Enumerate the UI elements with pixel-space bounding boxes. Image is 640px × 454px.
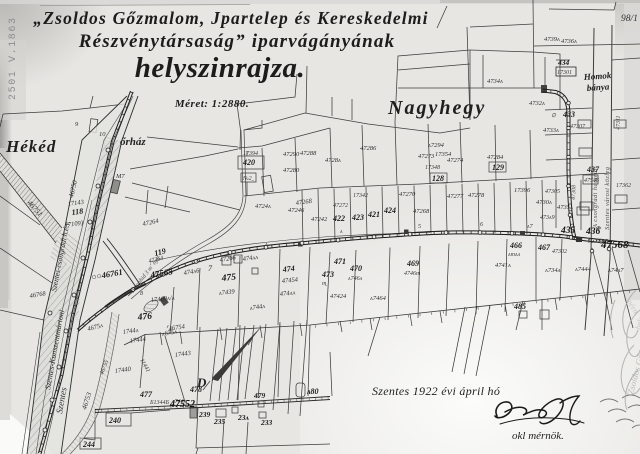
svg-text:4739ʌ: 4739ʌ — [544, 36, 560, 43]
svg-text:okl mérnök.: okl mérnök. — [512, 430, 564, 442]
svg-text:Szentes 1922 évi ápril hó: Szentes 1922 évi ápril hó — [372, 384, 500, 398]
svg-text:47305: 47305 — [545, 188, 560, 195]
svg-text:Hékéd: Hékéd — [5, 137, 56, 156]
svg-text:4735ʌ: 4735ʌ — [557, 204, 573, 211]
svg-text:17362: 17362 — [616, 183, 631, 189]
svg-text:473ʌ9: 473ʌ9 — [540, 214, 555, 221]
svg-text:244: 244 — [82, 440, 95, 449]
svg-text:4728ʌ: 4728ʌ — [325, 157, 341, 164]
svg-text:470: 470 — [349, 264, 362, 273]
svg-text:ʌ: ʌ — [265, 242, 268, 248]
svg-text:471: 471 — [333, 257, 346, 266]
svg-text:473: 473 — [321, 270, 334, 279]
svg-text:469: 469 — [406, 259, 419, 268]
svg-text:485: 485 — [513, 302, 526, 311]
svg-text:4733ʌ: 4733ʌ — [543, 127, 559, 134]
svg-text:47307: 47307 — [570, 123, 586, 130]
svg-text:Méret: 1:2880.: Méret: 1:2880. — [174, 98, 249, 110]
svg-text:2501 V.1863: 2501 V.1863 — [8, 16, 19, 100]
svg-text:„Zsoldos Gőzmalom, Jpartelep é: „Zsoldos Gőzmalom, Jpartelep és Keresked… — [33, 8, 428, 28]
svg-text:47274: 47274 — [447, 157, 464, 164]
svg-text:435: 435 — [560, 226, 576, 236]
svg-text:Nagyhegy: Nagyhegy — [387, 97, 486, 119]
svg-text:ʌ746ʌ: ʌ746ʌ — [348, 275, 363, 282]
svg-text:47246: 47246 — [288, 207, 305, 214]
svg-text:420: 420 — [242, 158, 255, 167]
svg-text:4736ʌ: 4736ʌ — [561, 38, 577, 45]
svg-text:47286: 47286 — [360, 145, 377, 152]
svg-text:ʌ734ʌ: ʌ734ʌ — [545, 267, 561, 274]
svg-text:Homok: Homok — [582, 70, 612, 82]
svg-text:№2 ̫: №2 ̫ — [242, 176, 254, 182]
svg-text:D: D — [196, 375, 207, 390]
svg-text:4732ʌ: 4732ʌ — [529, 100, 545, 107]
svg-text:17396: 17396 — [514, 187, 531, 194]
svg-text:ʌ7464: ʌ7464 — [370, 295, 387, 302]
svg-text:6: 6 — [480, 222, 483, 228]
svg-text:47278: 47278 — [468, 192, 485, 199]
svg-text:4730ʌ: 4730ʌ — [536, 199, 552, 206]
svg-text:437: 437 — [586, 165, 600, 174]
svg-text:ʌ80: ʌ80 — [306, 387, 319, 396]
svg-text:128: 128 — [432, 174, 444, 183]
svg-text:47288: 47288 — [300, 150, 317, 157]
svg-text:421: 421 — [367, 210, 380, 219]
svg-text:10: 10 — [99, 131, 106, 138]
svg-text:M7: M7 — [115, 173, 125, 180]
svg-text:47552: 47552 — [169, 399, 195, 410]
svg-text:5: 5 — [418, 224, 421, 230]
svg-text:4741ʌ: 4741ʌ — [495, 262, 511, 269]
svg-text:98/1: 98/1 — [621, 14, 638, 24]
svg-text:424: 424 — [383, 206, 396, 215]
svg-text:4746т: 4746т — [404, 270, 421, 277]
svg-text:4724ʌ: 4724ʌ — [255, 203, 271, 210]
svg-text:ʌ7444: ʌ7444 — [575, 266, 592, 273]
svg-text:239: 239 — [198, 410, 211, 419]
svg-text:475: 475 — [220, 273, 236, 285]
svg-text:17394: 17394 — [243, 150, 258, 157]
svg-text:őrház: őrház — [120, 136, 146, 148]
svg-text:helyszinrajza.: helyszinrajza. — [135, 52, 306, 84]
svg-text:ʌ7294: ʌ7294 — [428, 142, 445, 149]
svg-text:ʌтʌʌ: ʌтʌʌ — [508, 252, 521, 258]
svg-text:Szentes városi közleg: Szentes városi közleg — [604, 166, 611, 230]
svg-text:4734ʌ: 4734ʌ — [487, 78, 503, 85]
svg-text:477: 477 — [139, 390, 153, 399]
svg-text:434: 434 — [557, 58, 570, 67]
svg-text:47268: 47268 — [413, 208, 430, 215]
svg-text:ʌ7: ʌ7 — [527, 224, 534, 230]
svg-text:47242: 47242 — [311, 216, 328, 223]
svg-text:476: 476 — [136, 312, 152, 324]
svg-text:233: 233 — [260, 418, 273, 427]
svg-text:47302: 47302 — [552, 248, 567, 255]
svg-text:466: 466 — [509, 241, 522, 250]
svg-text:235: 235 — [213, 417, 226, 426]
svg-text:Ф: Ф — [596, 226, 601, 232]
svg-text:47284: 47284 — [487, 154, 504, 161]
svg-text:118: 118 — [71, 206, 84, 217]
svg-text:47311: 47311 — [615, 115, 622, 130]
svg-text:129: 129 — [492, 163, 504, 172]
svg-text:47273: 47273 — [418, 153, 435, 160]
svg-text:423: 423 — [351, 213, 364, 222]
svg-text:47546: 47546 — [584, 177, 599, 184]
svg-text:467: 467 — [537, 243, 551, 252]
svg-text:47280: 47280 — [283, 167, 300, 174]
svg-text:8: 8 — [140, 291, 143, 297]
svg-text:bánya: bánya — [586, 81, 610, 93]
svg-text:474: 474 — [281, 264, 295, 274]
svg-text:47308: 47308 — [570, 185, 578, 200]
svg-text:422: 422 — [332, 214, 345, 223]
svg-text:433: 433 — [562, 110, 575, 119]
svg-text:Б1344Б: Б1344Б — [149, 399, 170, 406]
svg-text:23ʌ: 23ʌ — [237, 413, 250, 422]
svg-text:240: 240 — [108, 416, 121, 425]
svg-text:ʌ74ʌ7: ʌ74ʌ7 — [608, 267, 624, 274]
svg-text:47277: 47277 — [447, 193, 464, 200]
svg-text:47568: 47568 — [600, 239, 629, 251]
svg-text:17301: 17301 — [557, 70, 572, 76]
svg-text:17354: 17354 — [435, 151, 452, 158]
svg-text:17348: 17348 — [425, 164, 440, 171]
svg-text:47270: 47270 — [399, 191, 416, 198]
svg-text:47290: 47290 — [283, 151, 300, 158]
svg-text:47424: 47424 — [330, 293, 347, 300]
svg-text:479: 479 — [253, 391, 266, 400]
svg-text:47272: 47272 — [333, 202, 348, 209]
svg-text:Részvénytársaság” iparvágányán: Részvénytársaság” iparvágányának — [78, 31, 396, 52]
svg-text:17342: 17342 — [353, 192, 368, 199]
svg-text:ʌ: ʌ — [340, 229, 343, 235]
